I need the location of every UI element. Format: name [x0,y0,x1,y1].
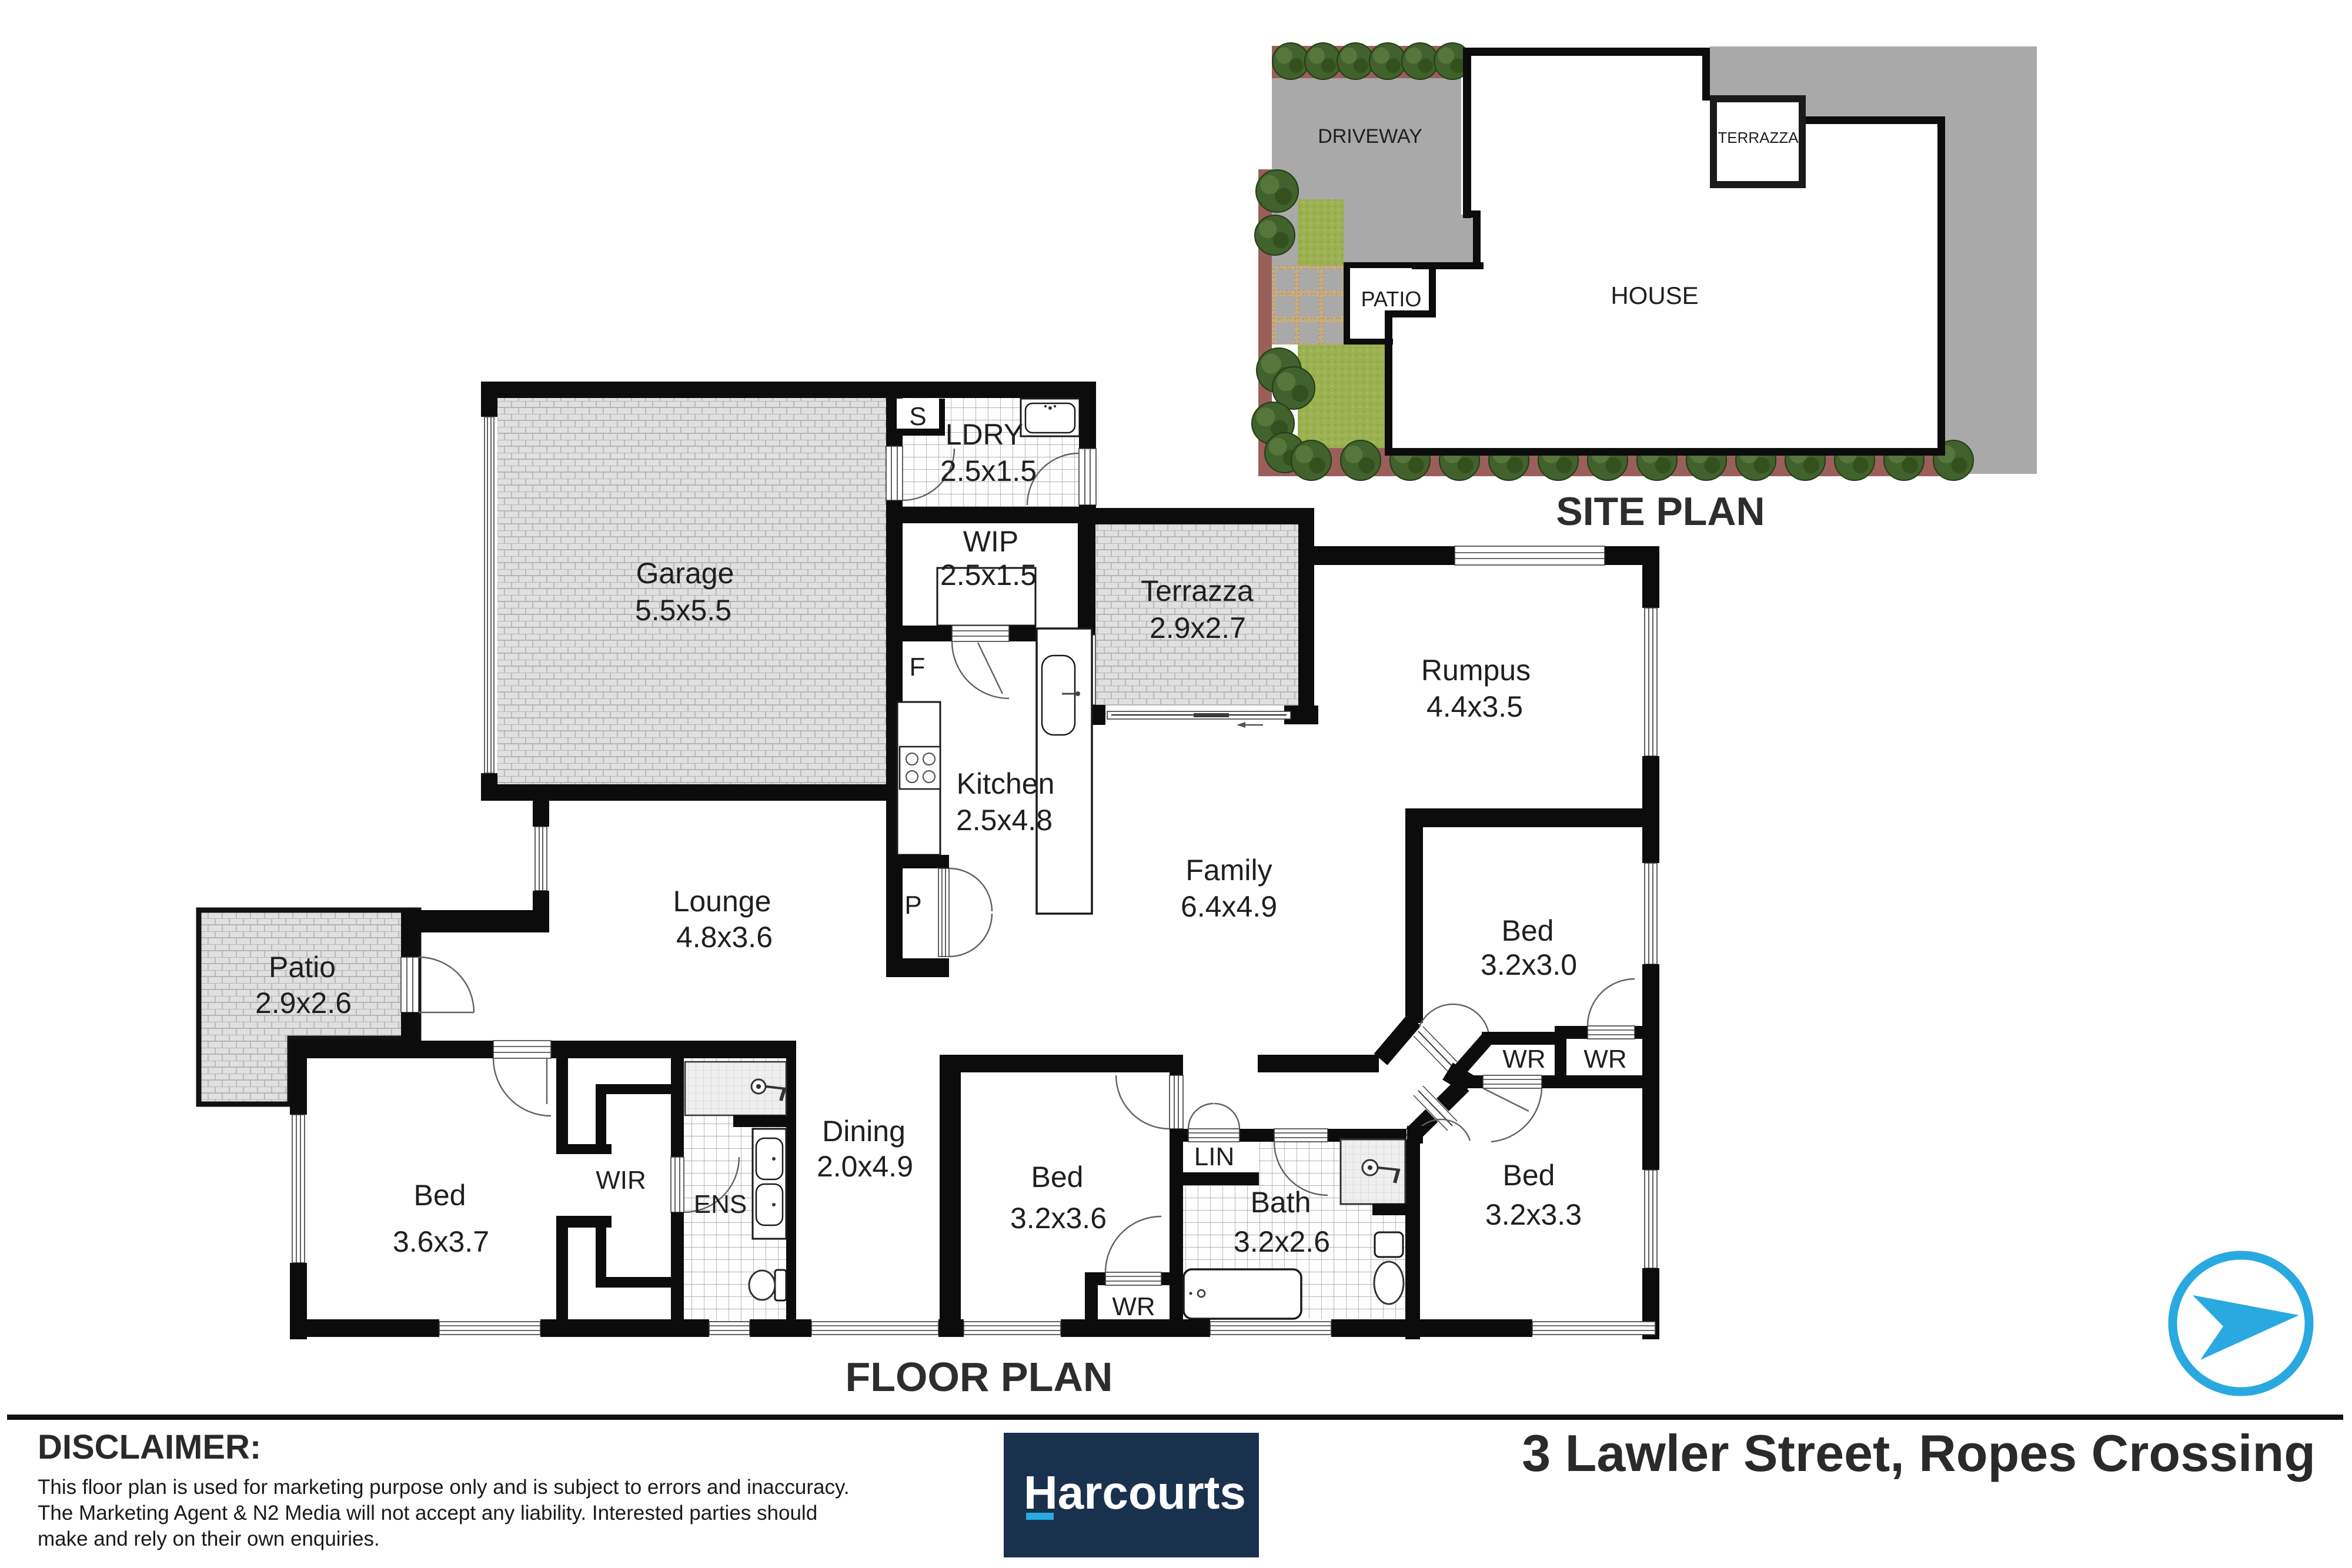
svg-text:3.2x3.6: 3.2x3.6 [1010,1202,1107,1235]
svg-text:3.2x2.6: 3.2x2.6 [1234,1225,1330,1258]
svg-text:F: F [910,653,926,681]
svg-text:Dining: Dining [822,1115,906,1148]
svg-text:Patio: Patio [269,951,336,984]
svg-text:The Marketing Agent & N2 Media: The Marketing Agent & N2 Media will not … [38,1502,817,1524]
svg-text:P: P [904,891,921,920]
svg-text:Bed: Bed [1503,1159,1555,1192]
svg-text:Bed: Bed [1502,914,1554,947]
svg-text:4.8x3.6: 4.8x3.6 [676,921,773,954]
svg-text:HOUSE: HOUSE [1611,282,1698,309]
svg-text:WR: WR [1502,1045,1545,1074]
svg-text:Lounge: Lounge [673,885,771,918]
svg-text:Family: Family [1185,854,1272,887]
svg-text:S: S [909,402,926,431]
svg-text:2.5x4.8: 2.5x4.8 [956,804,1053,837]
svg-text:LIN: LIN [1194,1142,1234,1171]
svg-text:Harcourts: Harcourts [1024,1466,1246,1519]
svg-text:Bath: Bath [1251,1186,1311,1219]
svg-text:PATIO: PATIO [1361,287,1422,311]
svg-text:2.5x1.5: 2.5x1.5 [940,559,1037,591]
svg-text:2.5x1.5: 2.5x1.5 [940,454,1037,487]
svg-text:ENS: ENS [694,1190,747,1219]
svg-text:3 Lawler Street, Ropes Crossin: 3 Lawler Street, Ropes Crossing [1522,1424,2316,1482]
svg-text:4.4x3.5: 4.4x3.5 [1426,690,1523,723]
svg-text:Kitchen: Kitchen [957,767,1055,800]
svg-text:2.9x2.6: 2.9x2.6 [255,987,352,1019]
svg-text:LDRY: LDRY [946,418,1023,451]
svg-text:2.0x4.9: 2.0x4.9 [817,1150,913,1183]
svg-text:Bed: Bed [1031,1161,1084,1193]
svg-text:Rumpus: Rumpus [1421,654,1531,687]
svg-text:Terrazza: Terrazza [1141,574,1254,607]
svg-text:3.2x3.3: 3.2x3.3 [1485,1198,1582,1231]
svg-text:DISCLAIMER:: DISCLAIMER: [38,1428,261,1466]
svg-text:6.4x4.9: 6.4x4.9 [1181,890,1277,923]
svg-text:TERRAZZA: TERRAZZA [1718,129,1799,146]
svg-text:5.5x5.5: 5.5x5.5 [635,594,731,627]
svg-text:3.2x3.0: 3.2x3.0 [1481,948,1577,981]
svg-text:make and rely on their own enq: make and rely on their own enquiries. [38,1527,380,1550]
svg-text:Garage: Garage [636,557,734,590]
svg-text:WR: WR [1112,1292,1155,1321]
svg-text:SITE PLAN: SITE PLAN [1556,489,1765,534]
svg-text:2.9x2.7: 2.9x2.7 [1150,611,1246,644]
svg-text:DRIVEWAY: DRIVEWAY [1318,125,1422,148]
svg-text:WR: WR [1583,1045,1626,1074]
svg-text:WIP: WIP [963,525,1018,558]
svg-text:Bed: Bed [414,1179,466,1212]
svg-text:WIR: WIR [596,1166,646,1195]
svg-text:FLOOR PLAN: FLOOR PLAN [846,1354,1113,1400]
svg-text:3.6x3.7: 3.6x3.7 [393,1225,489,1258]
svg-text:This floor plan is used for ma: This floor plan is used for marketing pu… [38,1476,850,1499]
